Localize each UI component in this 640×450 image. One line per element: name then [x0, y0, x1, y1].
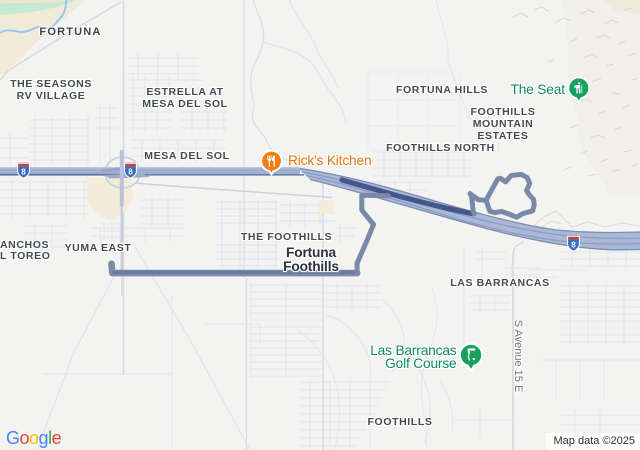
svg-text:8: 8 — [571, 241, 576, 250]
svg-text:8: 8 — [128, 168, 133, 177]
svg-text:8: 8 — [21, 168, 26, 177]
